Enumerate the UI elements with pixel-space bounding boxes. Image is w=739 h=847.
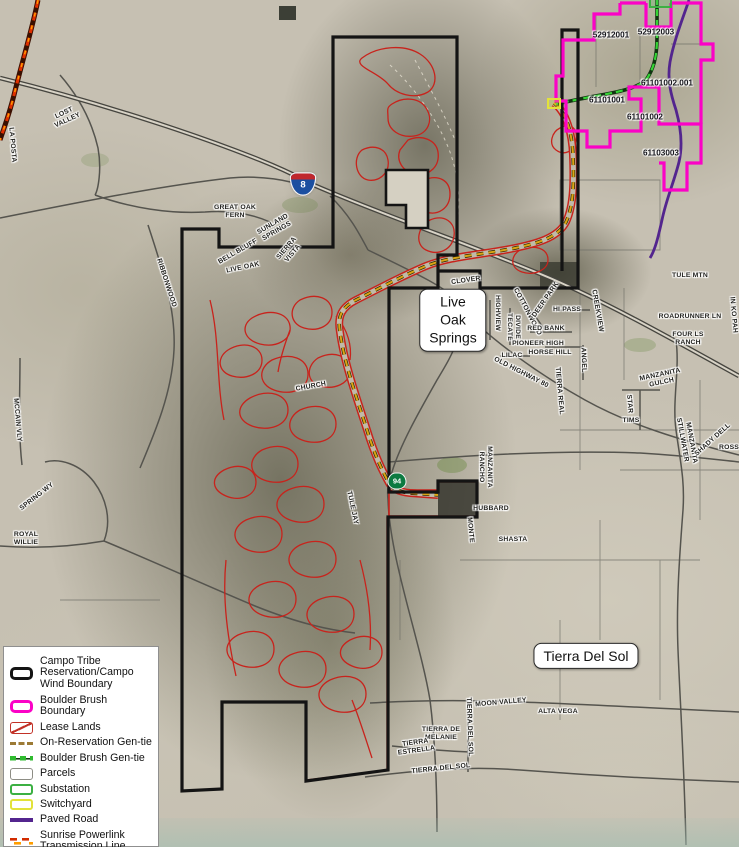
- legend-label: On-Reservation Gen-tie: [40, 737, 154, 749]
- legend-item-substation: Substation: [10, 784, 154, 796]
- legend-label: Sunrise Powerlink Transmission Line: [40, 830, 154, 847]
- sunrise-powerlink-line: [0, 0, 38, 140]
- campo-wind-boundary: [182, 30, 578, 791]
- legend-label: Lease Lands: [40, 722, 154, 734]
- parcels-swatch: [10, 768, 33, 780]
- map-figure: 8 94 CLOVERHIGHVIEWTECATEDIVIDECOTTONWOO…: [0, 0, 739, 847]
- paved-road-swatch: [10, 818, 33, 822]
- legend-item-paved-road: Paved Road: [10, 814, 154, 826]
- legend-item-boulder-brush-boundary: Boulder Brush Boundary: [10, 695, 154, 719]
- lease-lands: [210, 48, 576, 780]
- legend-label: Switchyard: [40, 799, 154, 811]
- substation-marker: [650, 0, 671, 7]
- legend-label: Boulder Brush Gen-tie: [40, 753, 154, 765]
- boulder-brush-boundary-swatch: [10, 700, 33, 713]
- legend-label: Substation: [40, 784, 154, 796]
- legend-item-boulder-brush-gen-tie: Boulder Brush Gen-tie: [10, 753, 154, 765]
- terrain-patches: [81, 6, 656, 473]
- boulder-brush-gen-tie-swatch: [10, 756, 33, 761]
- legend-item-lease-lands: Lease Lands: [10, 722, 154, 734]
- substation-swatch: [10, 784, 33, 795]
- legend-label: Paved Road: [40, 814, 154, 826]
- legend-item-switchyard: Switchyard: [10, 799, 154, 811]
- legend-label: Campo Tribe Reservation/Campo Wind Bound…: [40, 656, 154, 692]
- campo-boundary-swatch: [10, 667, 33, 680]
- legend-label: Parcels: [40, 768, 154, 780]
- substation-parcel: [438, 482, 477, 516]
- legend: Campo Tribe Reservation/Campo Wind Bound…: [3, 646, 159, 847]
- legend-item-parcels: Parcels: [10, 768, 154, 780]
- legend-label: Boulder Brush Boundary: [40, 695, 154, 719]
- lease-lands-swatch: [10, 722, 33, 734]
- on-reservation-gen-tie-swatch: [10, 742, 33, 745]
- switchyard-marker: [548, 99, 560, 108]
- legend-item-sunrise-powerlink: Sunrise Powerlink Transmission Line: [10, 830, 154, 847]
- legend-item-campo-boundary: Campo Tribe Reservation/Campo Wind Bound…: [10, 656, 154, 692]
- interstate-8-freeway: [0, 78, 739, 376]
- sunrise-powerlink-swatch: [10, 838, 33, 845]
- legend-item-on-reservation-gen-tie: On-Reservation Gen-tie: [10, 737, 154, 749]
- switchyard-swatch: [10, 799, 33, 810]
